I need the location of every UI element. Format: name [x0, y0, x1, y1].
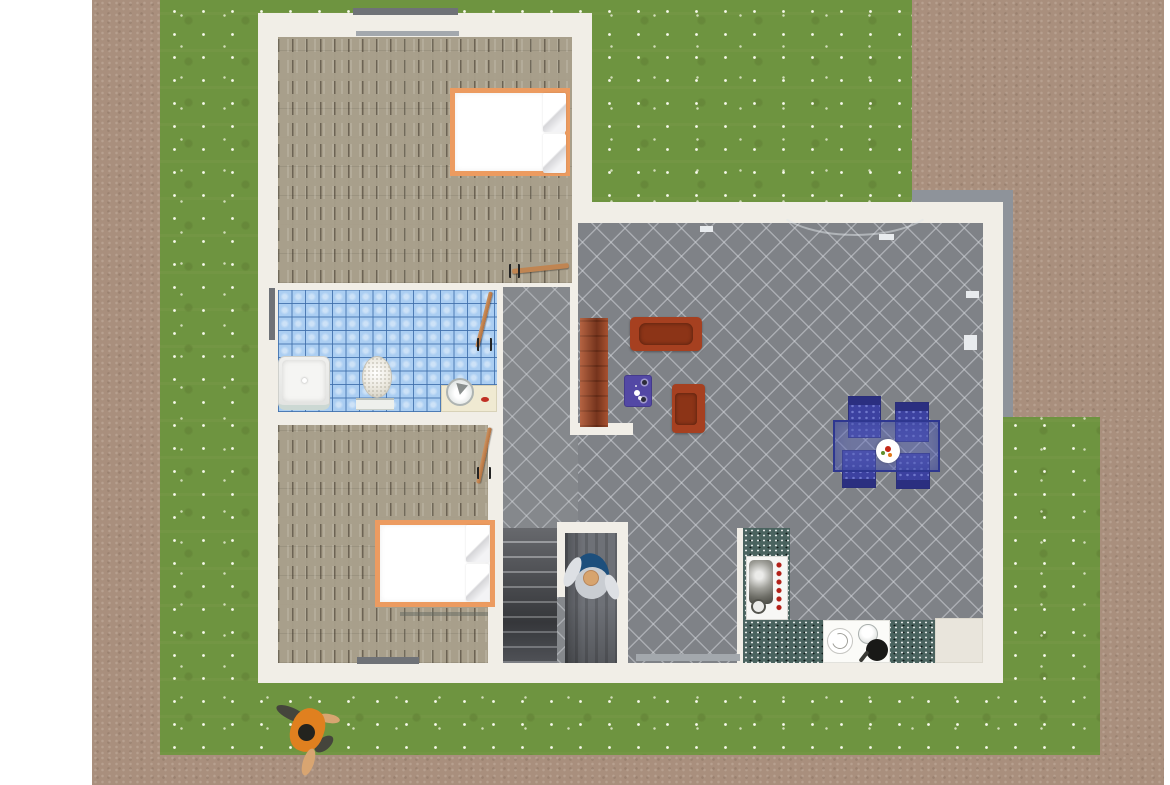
door-bedroom-top-handle — [509, 264, 520, 278]
bookcase — [580, 318, 608, 427]
kitchen-plate — [827, 628, 853, 654]
shower — [278, 356, 330, 410]
sofa — [630, 317, 702, 351]
toilet-base — [356, 398, 394, 410]
bed-bottom-shadow — [400, 612, 488, 616]
dirt-path-bottom — [92, 755, 1164, 785]
bed-bottom-pillow-2 — [466, 564, 489, 601]
bed-bottom-pillow-1 — [466, 525, 489, 562]
toilet — [362, 356, 392, 398]
kitchen-island — [935, 618, 983, 663]
window-crank-3 — [966, 291, 979, 298]
door-bathroom-handle — [477, 338, 492, 351]
sink-bowl — [446, 378, 474, 406]
window-bedroom-bottom — [357, 657, 419, 664]
staircase — [503, 528, 557, 663]
kitchen-fridge-ring — [751, 599, 766, 614]
kitchen-pan — [866, 639, 888, 661]
home-plan-render-canvas[interactable] — [0, 0, 1170, 785]
window-bathroom-left — [269, 288, 275, 340]
window-bedroom-top-outer — [353, 8, 458, 15]
window-crank-1 — [700, 226, 713, 232]
door-bedroom-bottom-handle — [477, 467, 491, 479]
person-outside-head — [298, 724, 315, 741]
window-crank-4 — [964, 335, 977, 350]
armchair — [672, 384, 705, 433]
dirt-path-left — [92, 0, 160, 785]
dirt-path-right — [1100, 417, 1164, 785]
window-crank-2 — [879, 234, 894, 240]
stairwell-wall-left — [557, 533, 565, 597]
coffee-table — [624, 375, 652, 407]
wall-hall-living — [570, 287, 578, 435]
window-living-bottom — [636, 654, 740, 661]
window-bedroom-top-inner — [356, 31, 459, 36]
soap-dish — [481, 397, 489, 402]
person-inside-head — [583, 570, 599, 586]
terrace-door-arc — [770, 160, 940, 236]
bed-top-pillow-2 — [543, 134, 566, 173]
bed-top-pillow-1 — [543, 93, 566, 132]
fruit-plate — [876, 439, 900, 463]
